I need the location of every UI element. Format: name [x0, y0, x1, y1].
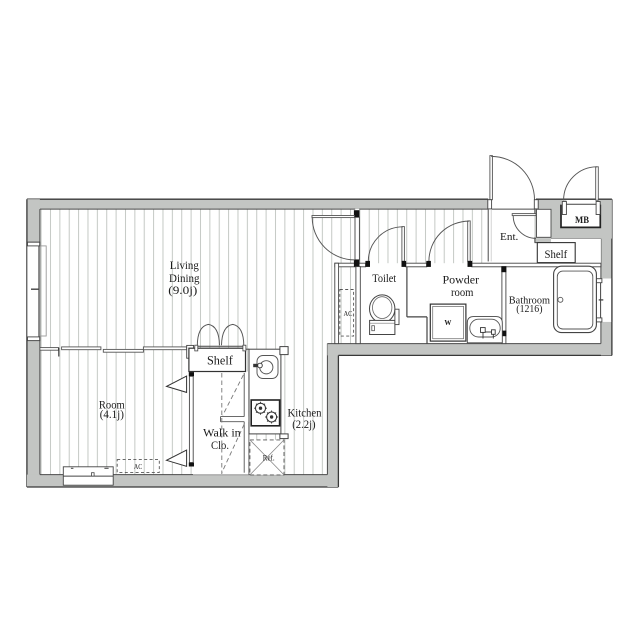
svg-text:Kitchen: Kitchen	[288, 407, 322, 419]
svg-text:room: room	[451, 287, 474, 299]
svg-text:(2.2j): (2.2j)	[292, 419, 316, 431]
svg-text:Living: Living	[170, 260, 199, 272]
svg-text:Powder: Powder	[443, 275, 480, 287]
svg-text:Clo.: Clo.	[211, 440, 229, 452]
svg-text:Shelf: Shelf	[545, 249, 568, 261]
svg-text:Shelf: Shelf	[207, 354, 234, 368]
svg-text:W: W	[444, 319, 451, 327]
svg-text:Ref.: Ref.	[263, 453, 275, 462]
svg-text:AC: AC	[134, 462, 142, 471]
svg-text:Walk in: Walk in	[203, 427, 241, 439]
svg-text:(4.1j): (4.1j)	[100, 409, 124, 421]
svg-text:Toilet: Toilet	[372, 273, 397, 285]
svg-text:(1216): (1216)	[516, 303, 542, 315]
svg-text:(9.0j): (9.0j)	[168, 285, 197, 297]
svg-text:AC: AC	[344, 309, 353, 318]
svg-text:Dining: Dining	[169, 273, 200, 285]
svg-text:Ent.: Ent.	[500, 231, 519, 243]
svg-text:MB: MB	[575, 216, 590, 226]
